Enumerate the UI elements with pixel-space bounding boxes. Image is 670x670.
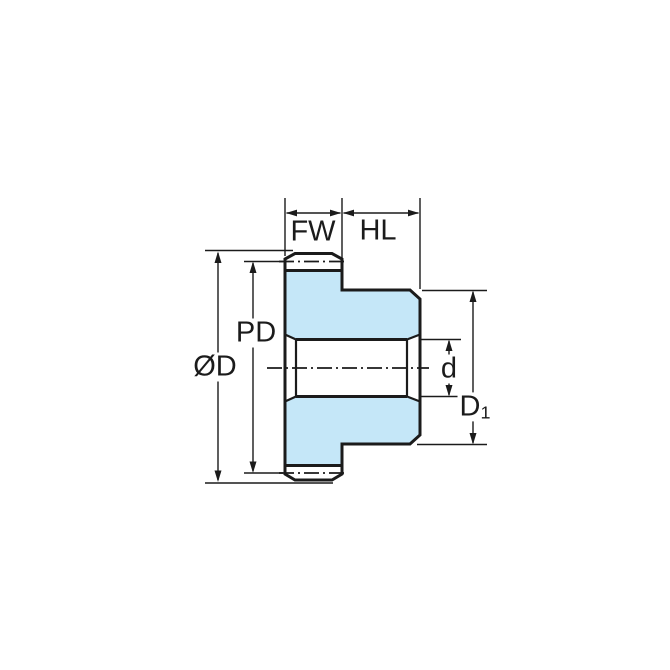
label-hub-diameter-sub: 1 — [480, 403, 490, 423]
drawing-canvas: FW HL PD ØD d D1 — [0, 0, 670, 670]
label-hub-diameter-main: D — [460, 390, 481, 422]
label-hub-diameter: D1 — [458, 392, 493, 421]
gear-drawing — [0, 0, 670, 670]
label-face-width: FW — [288, 218, 337, 247]
label-pitch-diameter: PD — [234, 319, 278, 348]
label-bore-diameter: d — [439, 355, 459, 384]
label-outside-diameter: ØD — [191, 353, 239, 382]
label-hub-length: HL — [357, 217, 398, 246]
